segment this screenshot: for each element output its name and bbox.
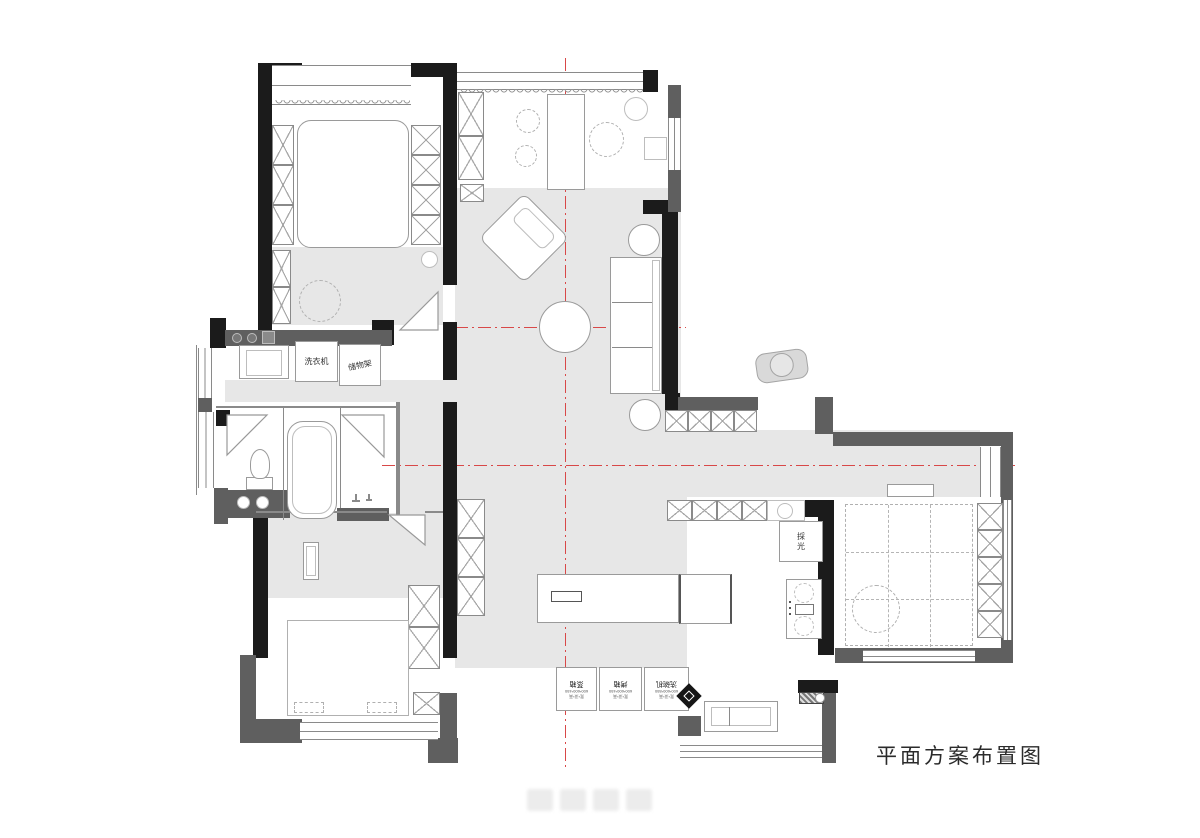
cabinet-cell	[734, 410, 757, 432]
door-stop	[815, 693, 825, 703]
wall-segment	[668, 85, 681, 118]
plant-pot	[624, 97, 648, 121]
wall-segment	[643, 70, 658, 92]
wardrobe-cell	[977, 557, 1003, 584]
knob-dot	[789, 601, 791, 603]
stool	[515, 145, 537, 167]
wall-segment	[428, 738, 458, 763]
wall-segment	[440, 693, 457, 741]
watermark	[626, 789, 652, 811]
wall-segment	[833, 432, 1013, 446]
wardrobe-cell	[411, 155, 441, 185]
partition-line	[425, 511, 443, 513]
wall-segment	[198, 398, 212, 412]
island-counter	[679, 574, 732, 624]
wall-segment	[822, 693, 836, 763]
drawing-title: 平面方案布置图	[876, 740, 1136, 768]
cabinet-cell	[457, 538, 485, 577]
wall-segment	[253, 508, 268, 658]
appliance-steam-oven: 宽*深*高 600*600*450 蒸箱	[556, 667, 597, 711]
wardrobe-cell	[977, 584, 1003, 611]
partition-line	[216, 406, 398, 408]
window-bedroom2-bottom	[300, 722, 438, 740]
burner	[794, 616, 814, 636]
appliance-spec: 宽*深*高	[569, 694, 584, 699]
cabinet-cell	[458, 92, 484, 136]
cabinet-cell	[711, 410, 734, 432]
wardrobe-cell	[411, 215, 441, 245]
sofa-seam	[612, 347, 652, 348]
sofa-seam	[612, 302, 652, 303]
partition-line	[283, 408, 284, 520]
side-table-round	[629, 399, 661, 431]
cabinet-cell	[457, 499, 485, 538]
rug	[299, 280, 341, 322]
side-table-round	[628, 224, 660, 256]
wall-segment	[214, 488, 228, 524]
tatami-round-table	[852, 585, 900, 633]
cabinet-cell	[460, 184, 484, 202]
door-swing	[225, 413, 269, 457]
round-chair	[589, 122, 624, 157]
appliance-name: 洗碗机	[656, 679, 677, 688]
lounge-chair	[753, 344, 810, 391]
cabinet-cell	[667, 500, 692, 521]
study-table	[547, 94, 585, 190]
wardrobe-cell	[977, 530, 1003, 557]
wall-segment	[443, 322, 457, 380]
window-laundry-left	[198, 348, 212, 398]
wardrobe-cell	[408, 627, 440, 669]
faucet-dot	[247, 333, 257, 343]
window-tatami-bottom	[863, 650, 975, 662]
door-swing	[340, 413, 386, 459]
wardrobe-cell	[411, 185, 441, 215]
wall-shelf	[887, 484, 934, 497]
appliance-dims: 600*600*850	[655, 688, 678, 694]
entry-cabinet-block	[678, 716, 701, 736]
washing-machine-label: 洗衣机	[305, 357, 329, 366]
appliance-dims: 600*600*450	[609, 688, 632, 694]
cabinet-cell	[458, 136, 484, 180]
daylight-label: 採光	[797, 532, 806, 552]
bed-double	[297, 120, 409, 248]
entry-bench-seat	[711, 707, 771, 726]
coffee-table	[539, 301, 591, 353]
wall-segment	[678, 397, 758, 410]
wall-segment	[210, 318, 226, 348]
faucet-dot	[232, 333, 242, 343]
window-right-wall	[1003, 500, 1012, 640]
shower-fixture	[355, 494, 357, 501]
wall-segment	[815, 397, 833, 434]
tatami-grid-line	[846, 552, 974, 553]
wall-segment	[258, 63, 272, 330]
bath-vanity	[337, 508, 389, 521]
watermark	[527, 789, 553, 811]
basin	[237, 496, 250, 509]
watermark	[560, 789, 586, 811]
sofa-back	[652, 260, 660, 391]
knob-dot	[789, 607, 791, 609]
floor-bath-hall	[400, 402, 443, 513]
side-table	[644, 137, 667, 160]
bathtub-inner	[292, 426, 332, 514]
wall-segment	[443, 63, 457, 285]
appliance-spec: 宽*深*高	[613, 694, 628, 699]
wardrobe-cell	[413, 692, 440, 715]
window-bath-left	[198, 412, 214, 488]
cabinet-cell	[742, 500, 767, 521]
window-corridor-right	[980, 447, 1001, 497]
knob-dot	[789, 613, 791, 615]
appliance-name: 烤箱	[614, 679, 628, 688]
counter-box	[262, 331, 275, 344]
laundry-sink	[246, 350, 282, 376]
tatami-grid-line	[930, 505, 931, 647]
door-swing	[396, 290, 440, 332]
wall-segment	[662, 212, 678, 394]
cabinet-cell	[272, 287, 291, 324]
cabinet-cell	[272, 205, 294, 245]
wall-segment	[443, 402, 457, 658]
stool	[516, 109, 540, 133]
pillow	[367, 702, 397, 713]
outer-wall-line	[196, 345, 197, 495]
storage-rack-label: 储物架	[347, 358, 372, 372]
bay-window-bedroom1	[272, 65, 411, 105]
wardrobe-cell	[977, 503, 1003, 530]
basin	[256, 496, 269, 509]
cabinet-cell	[457, 577, 485, 616]
control-box	[795, 604, 814, 615]
shower-fixture	[368, 494, 370, 500]
partition-line	[396, 402, 400, 520]
window-study-top	[457, 72, 643, 90]
daylight-shaft: 採光	[779, 521, 823, 562]
watermark	[593, 789, 619, 811]
cabinet-cell	[692, 500, 717, 521]
wall-segment	[668, 170, 681, 212]
wardrobe-cell	[411, 125, 441, 155]
window-study-right	[668, 118, 681, 170]
cabinet-cell	[665, 410, 688, 432]
desk-chairside	[306, 546, 316, 576]
wall-segment	[240, 655, 256, 721]
wardrobe-cell	[977, 611, 1003, 638]
wardrobe-cell	[408, 585, 440, 627]
cabinet-cell	[717, 500, 742, 521]
island-sink-insert	[551, 591, 582, 602]
storage-rack: 储物架	[339, 344, 381, 386]
bench-divider	[729, 707, 730, 726]
appliance-name: 蒸箱	[570, 679, 584, 688]
washing-machine: 洗衣机	[295, 341, 338, 382]
appliance-dims: 600*600*450	[565, 688, 588, 694]
window-kitchen-bottom	[680, 745, 822, 758]
appliance-spec: 宽*深*高	[659, 694, 674, 699]
cabinet-cell	[688, 410, 711, 432]
floor-plan-canvas: 洗衣机 储物架 採光 宽*深*高 600*600*450 蒸箱 宽*深*高 60…	[0, 0, 1200, 838]
burner	[794, 583, 814, 603]
centerline-horizontal-main	[382, 465, 1015, 466]
wall-segment	[240, 719, 302, 743]
appliance-oven: 宽*深*高 600*600*450 烤箱	[599, 667, 642, 711]
curtain-bedroom1	[275, 100, 410, 106]
pillow	[294, 702, 324, 713]
kitchen-sink	[777, 503, 793, 519]
cabinet-cell	[272, 125, 294, 165]
stool	[421, 251, 438, 268]
door-swing	[387, 513, 427, 547]
cabinet-cell	[272, 250, 291, 287]
cabinet-cell	[272, 165, 294, 205]
